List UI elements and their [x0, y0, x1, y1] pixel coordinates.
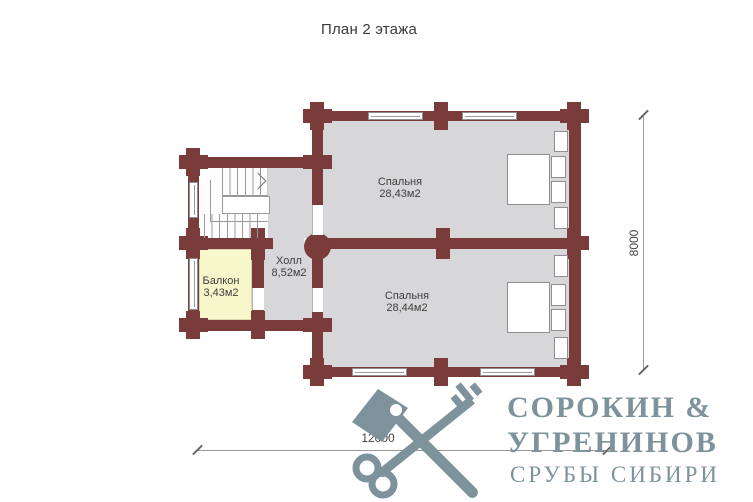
- dimension-line-vertical: [643, 115, 644, 370]
- log-joint: [436, 228, 450, 259]
- bed: [507, 282, 550, 333]
- bed: [507, 154, 550, 205]
- nightstand: [554, 131, 568, 152]
- log-joint: [303, 155, 332, 169]
- window: [189, 182, 198, 218]
- floor-plan-canvas: План 2 этажа: [0, 0, 753, 502]
- pillow: [551, 156, 566, 178]
- door-opening: [312, 288, 323, 312]
- floor-passage: [273, 238, 304, 249]
- log-joint: [179, 236, 208, 250]
- logo-line-2: УГРЕНИНОВ: [507, 426, 718, 460]
- log-joint: [560, 365, 589, 379]
- page-title: План 2 этажа: [279, 21, 459, 38]
- nightstand: [554, 337, 568, 359]
- dimension-label-height: 8000: [627, 213, 641, 273]
- window: [352, 368, 407, 376]
- room-label-balcony: Балкон 3,43м2: [191, 275, 251, 299]
- room-label-bedroom-2: Спальня 28,44м2: [347, 290, 467, 314]
- room-area: 3,43м2: [191, 287, 251, 299]
- room-name: Холл: [259, 255, 319, 267]
- room-name: Спальня: [347, 290, 467, 302]
- window: [368, 112, 423, 120]
- room-label-hall: Холл 8,52м2: [259, 255, 319, 279]
- nightstand: [554, 207, 568, 229]
- log-joint: [569, 236, 589, 250]
- log-joint: [303, 318, 332, 332]
- pillow: [551, 309, 566, 331]
- room-area: 28,44м2: [347, 302, 467, 314]
- room-name: Спальня: [340, 176, 460, 188]
- log-joint: [303, 109, 332, 123]
- door-opening: [312, 205, 323, 235]
- log-joint: [560, 109, 589, 123]
- floor-stair-landing-strip: [268, 168, 312, 238]
- window: [480, 368, 535, 376]
- axe-key-logo-icon: [350, 380, 508, 502]
- pillow: [551, 284, 566, 306]
- log-joint: [179, 155, 208, 169]
- room-name: Балкон: [191, 275, 251, 287]
- logo-line-3: СРУБЫ СИБИРИ: [510, 462, 720, 488]
- log-joint: [303, 365, 332, 379]
- pillow: [551, 181, 566, 203]
- room-label-bedroom-1: Спальня 28,43м2: [340, 176, 460, 200]
- nightstand: [554, 255, 568, 277]
- log-joint: [251, 311, 265, 339]
- log-joint: [179, 318, 208, 332]
- log-joint: [434, 102, 448, 130]
- door-opening: [252, 288, 264, 310]
- room-area: 8,52м2: [259, 267, 319, 279]
- room-area: 28,43м2: [340, 188, 460, 200]
- window: [462, 112, 517, 120]
- logo-line-1: СОРОКИН &: [507, 391, 712, 425]
